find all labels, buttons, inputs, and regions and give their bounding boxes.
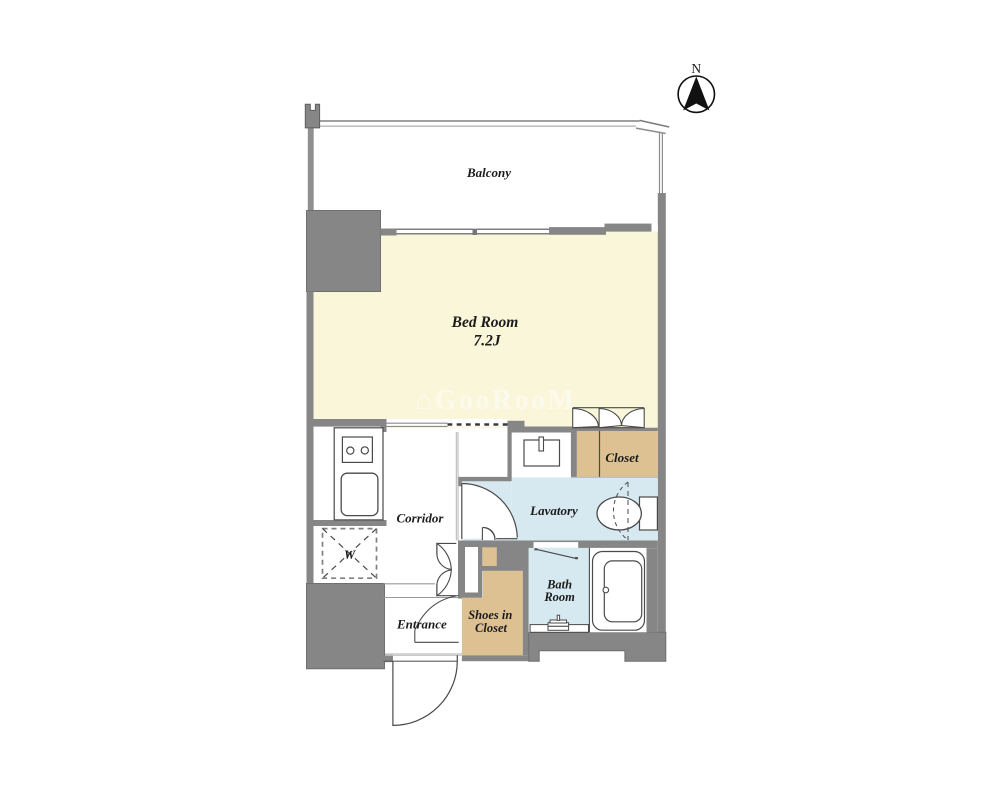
svg-text:⌂GooRooM: ⌂GooRooM	[415, 385, 576, 416]
svg-text:W: W	[344, 548, 356, 562]
svg-text:Closet: Closet	[605, 450, 639, 465]
svg-text:Shoes in: Shoes in	[468, 608, 512, 622]
svg-text:Lavatory: Lavatory	[529, 503, 578, 518]
svg-text:Closet: Closet	[475, 621, 507, 635]
svg-text:Bed Room: Bed Room	[451, 314, 519, 331]
svg-text:Balcony: Balcony	[466, 165, 511, 180]
svg-text:7.2J: 7.2J	[473, 333, 501, 350]
svg-text:Room: Room	[543, 590, 575, 604]
svg-text:Entrance: Entrance	[396, 617, 447, 632]
svg-text:N: N	[691, 61, 701, 76]
svg-text:Corridor: Corridor	[397, 511, 445, 526]
